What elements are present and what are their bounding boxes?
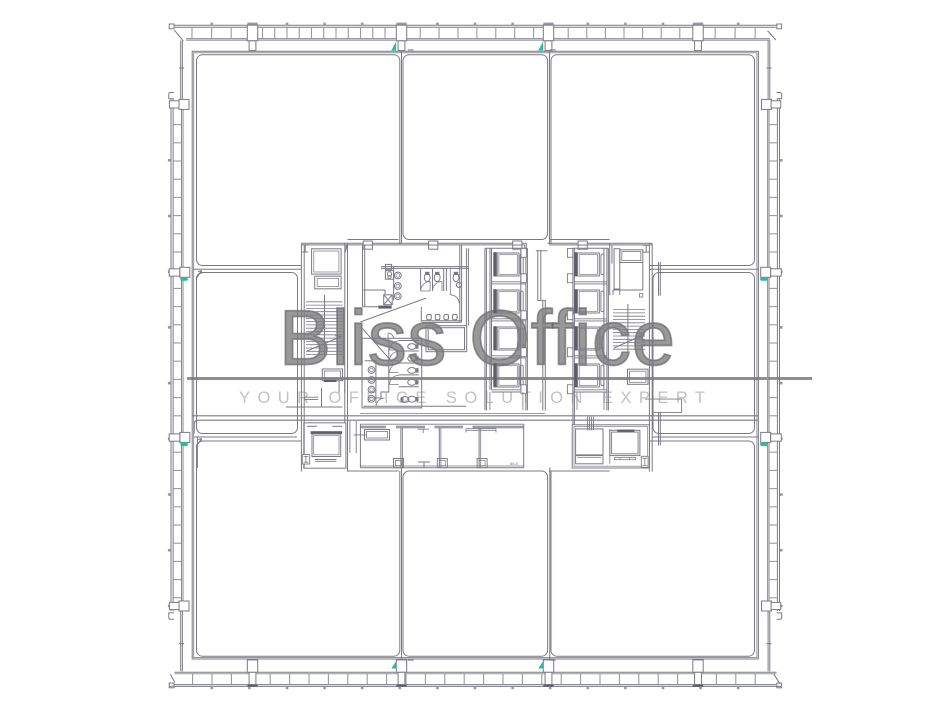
svg-text:88.8: 88.8 [510, 461, 519, 466]
